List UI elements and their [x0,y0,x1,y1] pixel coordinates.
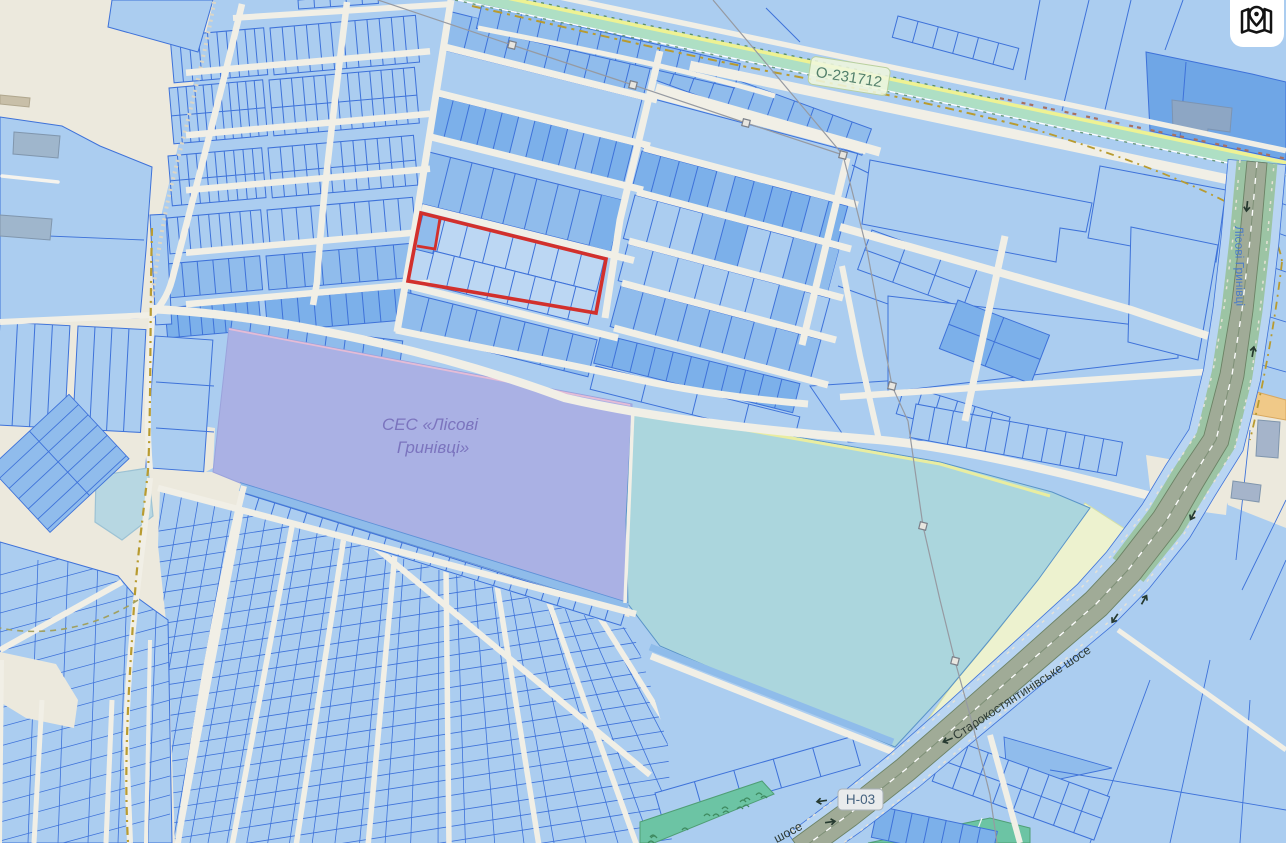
svg-text:Н-03: Н-03 [846,792,875,807]
svg-text:Лісові Гринівці: Лісові Гринівці [1232,226,1247,306]
svg-text:СЕС «Лісові: СЕС «Лісові [382,415,479,434]
svg-text:Гринівці»: Гринівці» [397,438,469,457]
